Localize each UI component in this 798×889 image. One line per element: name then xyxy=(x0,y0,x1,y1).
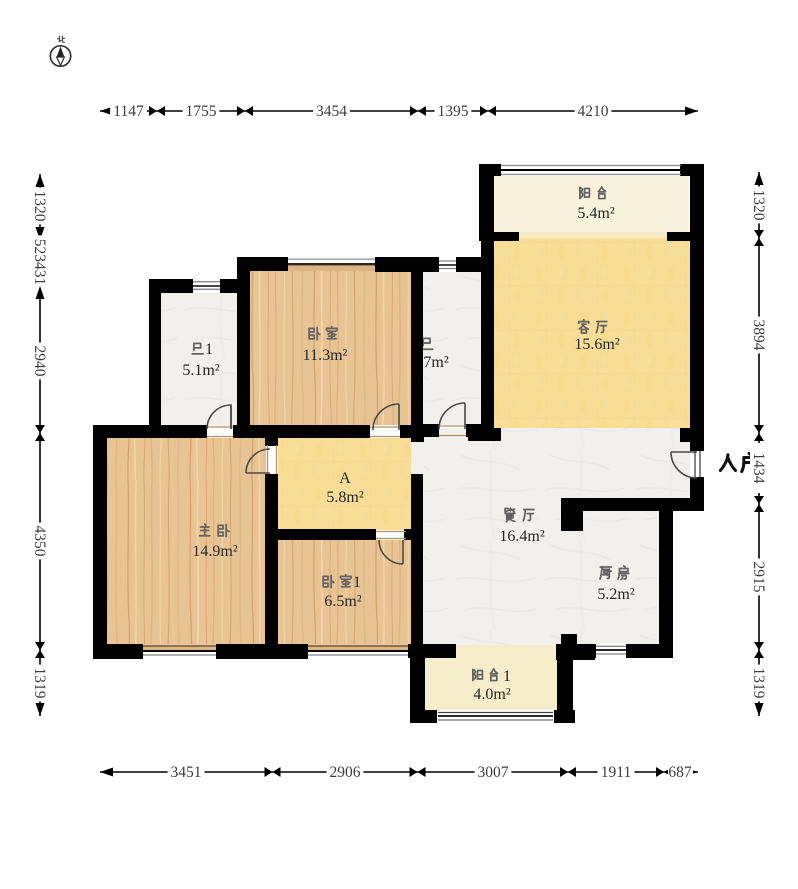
svg-text:15.6m²: 15.6m² xyxy=(574,336,619,353)
svg-text:4210: 4210 xyxy=(578,103,609,120)
svg-text:1: 1 xyxy=(503,668,511,685)
svg-text:5.2m²: 5.2m² xyxy=(597,586,634,603)
svg-text:1755: 1755 xyxy=(186,103,217,120)
svg-text:1395: 1395 xyxy=(438,103,469,120)
svg-text:3451: 3451 xyxy=(171,764,202,781)
svg-text:2906: 2906 xyxy=(330,764,361,781)
svg-text:4.0m²: 4.0m² xyxy=(473,686,510,703)
svg-text:1319: 1319 xyxy=(31,668,48,699)
svg-text:1319: 1319 xyxy=(750,668,767,699)
svg-text:3894: 3894 xyxy=(750,320,767,351)
svg-text:5.4m²: 5.4m² xyxy=(577,205,614,222)
svg-text:1320: 1320 xyxy=(750,190,767,221)
svg-text:A: A xyxy=(339,470,351,487)
svg-text:4350: 4350 xyxy=(31,526,48,557)
svg-text:3454: 3454 xyxy=(316,103,347,120)
svg-text:1434: 1434 xyxy=(750,453,767,484)
svg-text:1: 1 xyxy=(353,574,361,591)
svg-text:5.8m²: 5.8m² xyxy=(326,489,363,506)
svg-text:687: 687 xyxy=(668,764,692,781)
svg-text:14.9m²: 14.9m² xyxy=(192,543,237,560)
svg-text:16.4m²: 16.4m² xyxy=(499,528,544,545)
svg-text:2940: 2940 xyxy=(31,346,48,377)
svg-text:3007: 3007 xyxy=(478,764,509,781)
svg-text:1911: 1911 xyxy=(601,764,631,781)
svg-text:1147: 1147 xyxy=(113,103,144,120)
svg-text:2915: 2915 xyxy=(750,562,767,593)
svg-text:1320: 1320 xyxy=(31,191,48,222)
svg-text:1: 1 xyxy=(205,341,213,358)
svg-text:11.3m²: 11.3m² xyxy=(303,347,348,364)
svg-text:523431: 523431 xyxy=(31,239,48,286)
svg-text:6.5m²: 6.5m² xyxy=(324,593,361,610)
svg-text:5.1m²: 5.1m² xyxy=(182,362,219,379)
